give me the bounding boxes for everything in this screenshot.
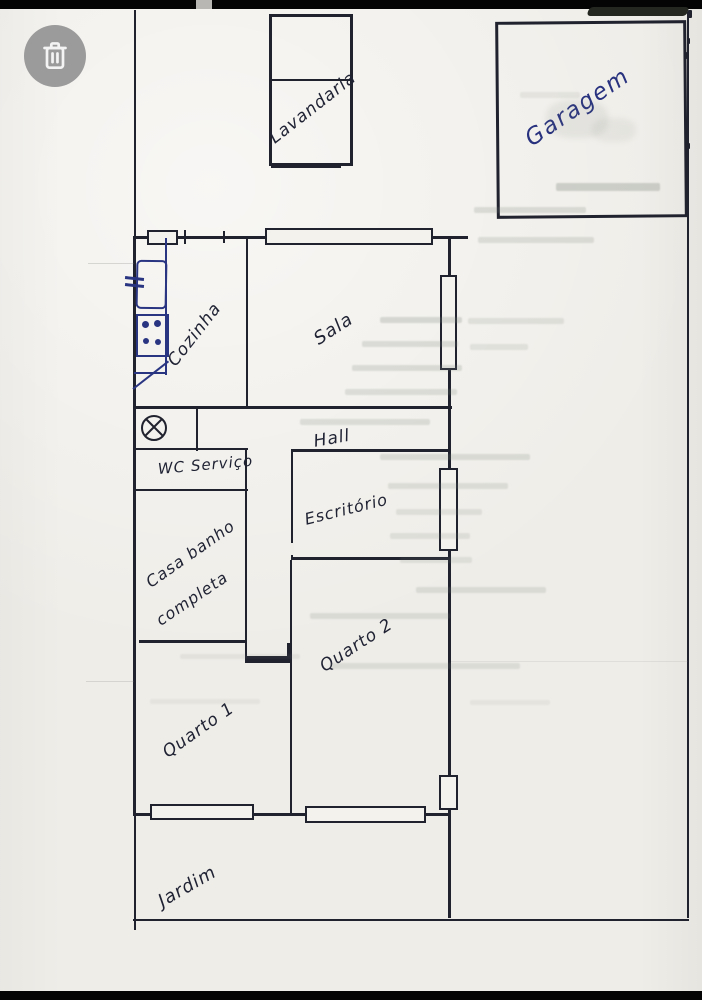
wall bbox=[134, 406, 452, 409]
bleed-through-row bbox=[470, 344, 528, 350]
bleed-through-row bbox=[310, 613, 450, 619]
window-symbol bbox=[147, 230, 178, 245]
photo-viewer: Lavandaria Garagem Cozinha Sala Hall WC … bbox=[0, 0, 702, 1000]
window-symbol bbox=[265, 228, 433, 245]
wall bbox=[290, 560, 292, 815]
bleed-through-row bbox=[474, 207, 586, 213]
wall bbox=[134, 489, 248, 491]
delete-button[interactable] bbox=[24, 25, 86, 87]
wall bbox=[134, 448, 248, 450]
bleed-through-row bbox=[362, 341, 458, 347]
paper-crease bbox=[88, 263, 134, 264]
paper-crease bbox=[451, 661, 688, 662]
bleed-through-row bbox=[470, 700, 550, 705]
wall bbox=[139, 640, 247, 643]
bottom-letterbox-bar bbox=[0, 991, 702, 1000]
burner-dot bbox=[155, 339, 161, 345]
wall-tick bbox=[184, 230, 186, 244]
bleed-through-row bbox=[180, 654, 300, 659]
ink-mark bbox=[688, 10, 692, 18]
ceiling-light-symbol bbox=[141, 415, 167, 441]
ink-mark bbox=[687, 38, 690, 44]
wall bbox=[133, 919, 689, 921]
bleed-through-blob bbox=[592, 118, 636, 142]
ink-mark bbox=[687, 143, 690, 149]
trash-icon bbox=[40, 40, 70, 72]
stove-symbol bbox=[136, 314, 169, 357]
door-opening bbox=[290, 543, 294, 555]
top-bar-notch bbox=[196, 0, 212, 9]
bleed-through-row bbox=[388, 483, 508, 489]
bleed-through-row bbox=[520, 92, 580, 98]
ink-smudge bbox=[586, 7, 689, 16]
bleed-through-row bbox=[396, 509, 482, 515]
window-symbol bbox=[305, 806, 426, 823]
paper-crease bbox=[86, 681, 134, 682]
bleed-through-row bbox=[390, 533, 470, 539]
ink-mark bbox=[685, 128, 689, 134]
bleed-through-row bbox=[380, 317, 462, 323]
burner-dot bbox=[154, 320, 161, 327]
burner-dot bbox=[142, 321, 149, 328]
bleed-through-row bbox=[416, 587, 546, 593]
wall-tick bbox=[223, 231, 225, 243]
bleed-through-row bbox=[330, 663, 520, 669]
window-symbol bbox=[150, 804, 254, 820]
bleed-through-row bbox=[556, 183, 660, 191]
bleed-through-row bbox=[300, 419, 430, 425]
wall bbox=[196, 407, 198, 451]
bleed-through-row bbox=[345, 389, 457, 395]
ink-mark bbox=[686, 52, 689, 59]
wall bbox=[271, 166, 341, 168]
bleed-through-row bbox=[352, 365, 462, 371]
window-symbol bbox=[439, 775, 458, 810]
wall bbox=[246, 238, 248, 408]
bleed-through-row bbox=[468, 318, 564, 324]
bleed-through-row bbox=[400, 557, 472, 563]
burner-dot bbox=[143, 338, 149, 344]
bleed-through-row bbox=[150, 699, 260, 704]
bleed-through-row bbox=[478, 237, 594, 243]
bleed-through-row bbox=[380, 454, 530, 460]
wall bbox=[245, 449, 247, 661]
